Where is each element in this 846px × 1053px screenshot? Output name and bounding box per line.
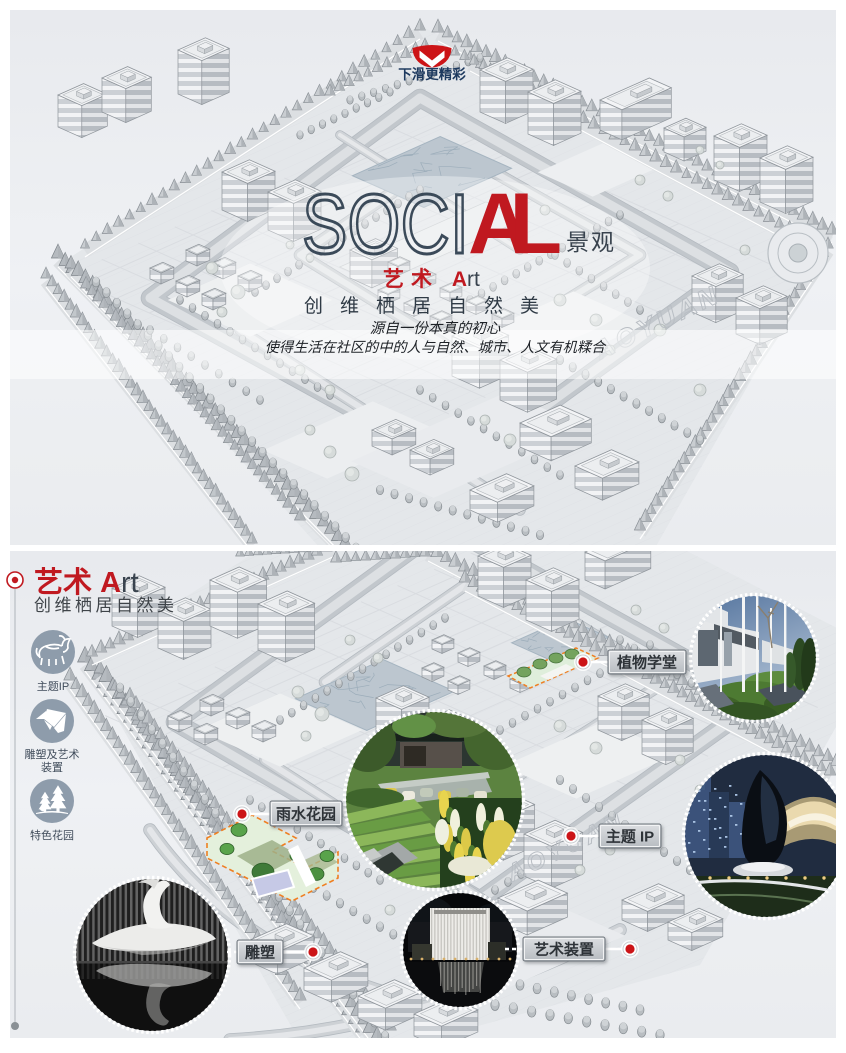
svg-text:艺术装置: 艺术装置 <box>534 940 594 958</box>
svg-text:艺术 Art: 艺术 Art <box>34 566 139 599</box>
svg-text:AL: AL <box>468 176 562 272</box>
svg-text:艺术 Art: 艺术 Art <box>383 267 480 291</box>
svg-text:植物学堂: 植物学堂 <box>617 653 677 671</box>
svg-text:景观: 景观 <box>566 229 616 255</box>
svg-text:使得生活在社区的中的人与自然、城市、人文有机糅合: 使得生活在社区的中的人与自然、城市、人文有机糅合 <box>265 339 607 356</box>
svg-text:主题 IP: 主题 IP <box>606 827 654 845</box>
svg-text:创维栖居自然美: 创维栖居自然美 <box>304 295 556 317</box>
svg-text:下滑更精彩: 下滑更精彩 <box>398 66 466 82</box>
svg-text:主题IP: 主题IP <box>37 680 69 693</box>
svg-text:特色花园: 特色花园 <box>30 828 74 842</box>
svg-text:SOCI: SOCI <box>302 178 469 271</box>
svg-text:装置: 装置 <box>41 761 63 774</box>
svg-text:雕塑及艺术: 雕塑及艺术 <box>25 747 80 761</box>
svg-text:创维栖居自然美: 创维栖居自然美 <box>34 596 178 615</box>
svg-text:雨水花园: 雨水花园 <box>276 805 336 823</box>
svg-text:源自一份本真的初心: 源自一份本真的初心 <box>370 320 501 337</box>
svg-text:雕塑: 雕塑 <box>245 943 275 961</box>
